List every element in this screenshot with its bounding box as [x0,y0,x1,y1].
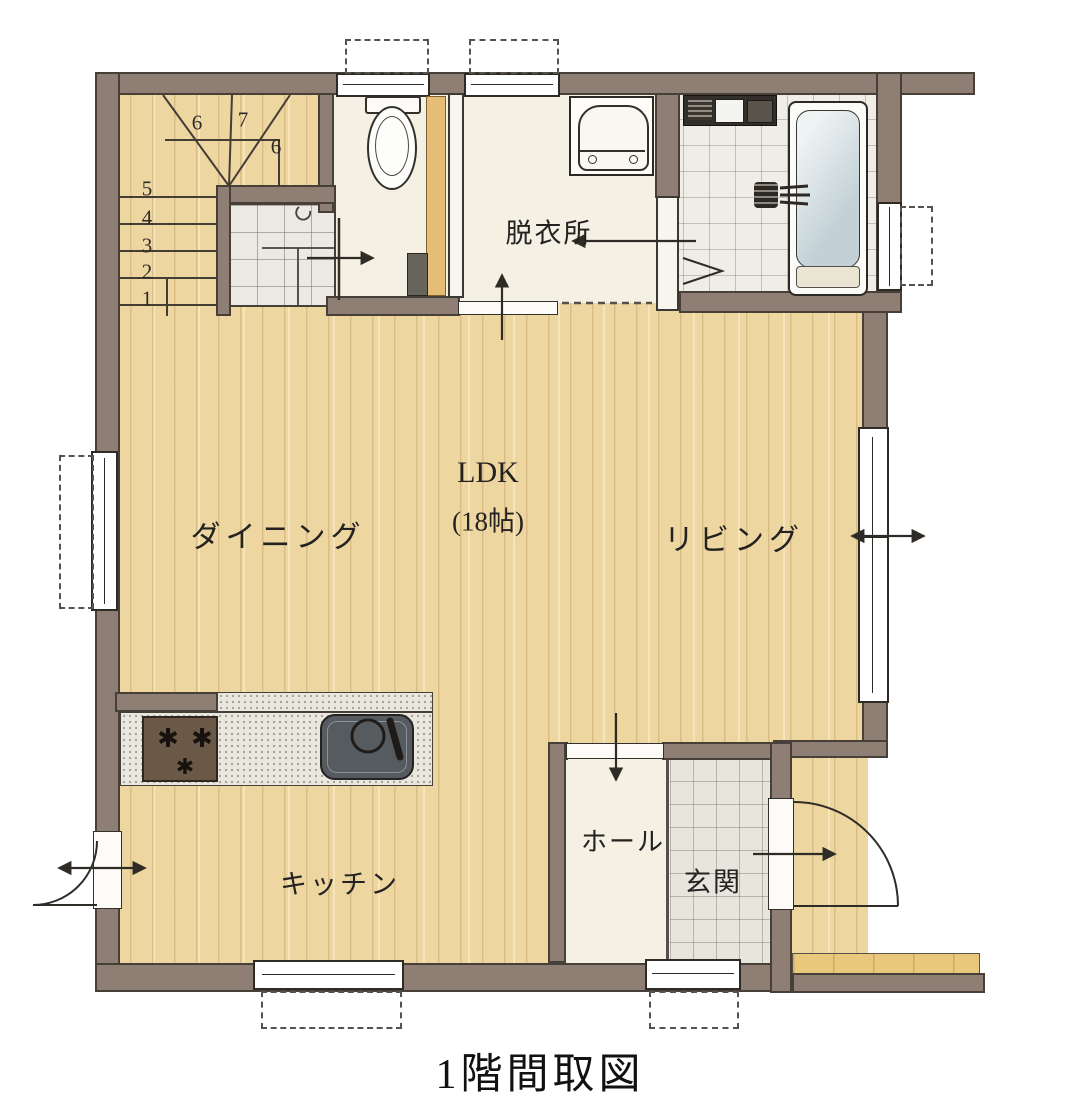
entrance-bottom-window [645,959,741,990]
stair-number: 7 [238,108,249,133]
eave-box-toilet-window [345,39,429,74]
dressing-window [464,73,560,97]
kitchen-door-opening [93,831,122,909]
kitchen-door-arc [33,841,97,905]
bathroom-window-sash [889,207,890,287]
stair-number: 6 [271,135,282,160]
wall-stair-stub [216,185,231,316]
label-kitchen: キッチン [280,863,400,902]
dressing-opening-threshold [458,301,558,315]
eave-box-dressing-window [469,39,559,74]
eave-box-bathroom-window [900,206,933,286]
bath-counter-shelf [747,100,773,123]
stair-number: 4 [142,206,153,231]
dining-window-sash [104,458,105,605]
wall-hall-left [548,742,566,963]
bathroom-door-panel [656,196,679,311]
toilet-window [336,73,430,97]
kitchen-window-sash [262,974,394,975]
washroom-tile-floor [228,203,336,307]
stair-number: 1 [142,287,153,312]
hall-floor [566,758,670,964]
wall-under-toilet [326,296,460,316]
kitchen-counter-bar [217,692,433,712]
label-ldk: LDK [457,456,519,490]
burner-icon: ✱ [157,724,179,754]
label-hall: ホール [581,822,665,859]
eave-box-kitchen-window [261,991,402,1029]
eave-box-dining-window [59,455,94,609]
stair-number: 3 [142,234,153,259]
stair-number: 5 [142,177,153,202]
eave-box-entrance-window [649,991,739,1029]
shower-fixture-icon [754,182,778,208]
washer-knob-left [588,155,597,164]
toilet-seat-icon [375,116,409,176]
kitchen-window [253,960,404,990]
wall-kitchen-stub [115,692,218,712]
entrance-door-opening [768,798,794,910]
toilet-window-sash [343,84,424,85]
burner-icon: ✱ [176,754,194,780]
entrance-bottom-window-sash [652,973,735,974]
hall-opening-threshold [566,743,664,759]
bathtub-icon [788,101,868,296]
plan-title: 1階間取図 [435,1040,644,1101]
wall-porch-bottom [792,973,985,993]
living-window-meeting-rail [860,536,887,538]
dining-window [91,451,118,611]
wall-dressing-bath [655,93,680,198]
label-living: リビング [664,515,804,559]
partition-toilet-dressing [448,93,464,298]
wall-under-winder [216,185,336,204]
bath-counter-mirror-box [715,99,744,123]
entrance-step-line [666,759,669,963]
washer-knob-right [629,155,638,164]
label-dressing-room: 脱衣所 [506,212,593,251]
washer-panel-line [578,150,645,152]
wall-hall-top-right [662,742,773,760]
label-dining: ダイニング [191,512,366,556]
bathroom-window [877,202,902,291]
bath-counter-unit [683,95,777,126]
floor-plan: ✱ ✱ ✱ [0,0,1080,1103]
burner-icon: ✱ [191,724,213,754]
bathtub-step [796,266,860,288]
stair-number: 2 [142,260,153,285]
living-window-sash [872,437,873,693]
bath-counter-vent [688,100,712,120]
washing-machine-icon [569,96,654,176]
label-ldk-area: (18帖) [452,500,524,539]
label-entrance: 玄関 [684,861,742,900]
sink-rim [327,721,407,773]
kitchen-sink-icon [320,714,414,780]
stove-icon: ✱ ✱ ✱ [142,716,218,782]
bathtub-inner [796,110,860,268]
stair-number: 6 [192,111,203,136]
entrance-porch-step [792,953,980,974]
dressing-window-sash [471,84,554,85]
living-window [858,427,889,703]
toilet-storage-box [407,253,428,296]
toilet-side-cabinet [426,96,446,296]
